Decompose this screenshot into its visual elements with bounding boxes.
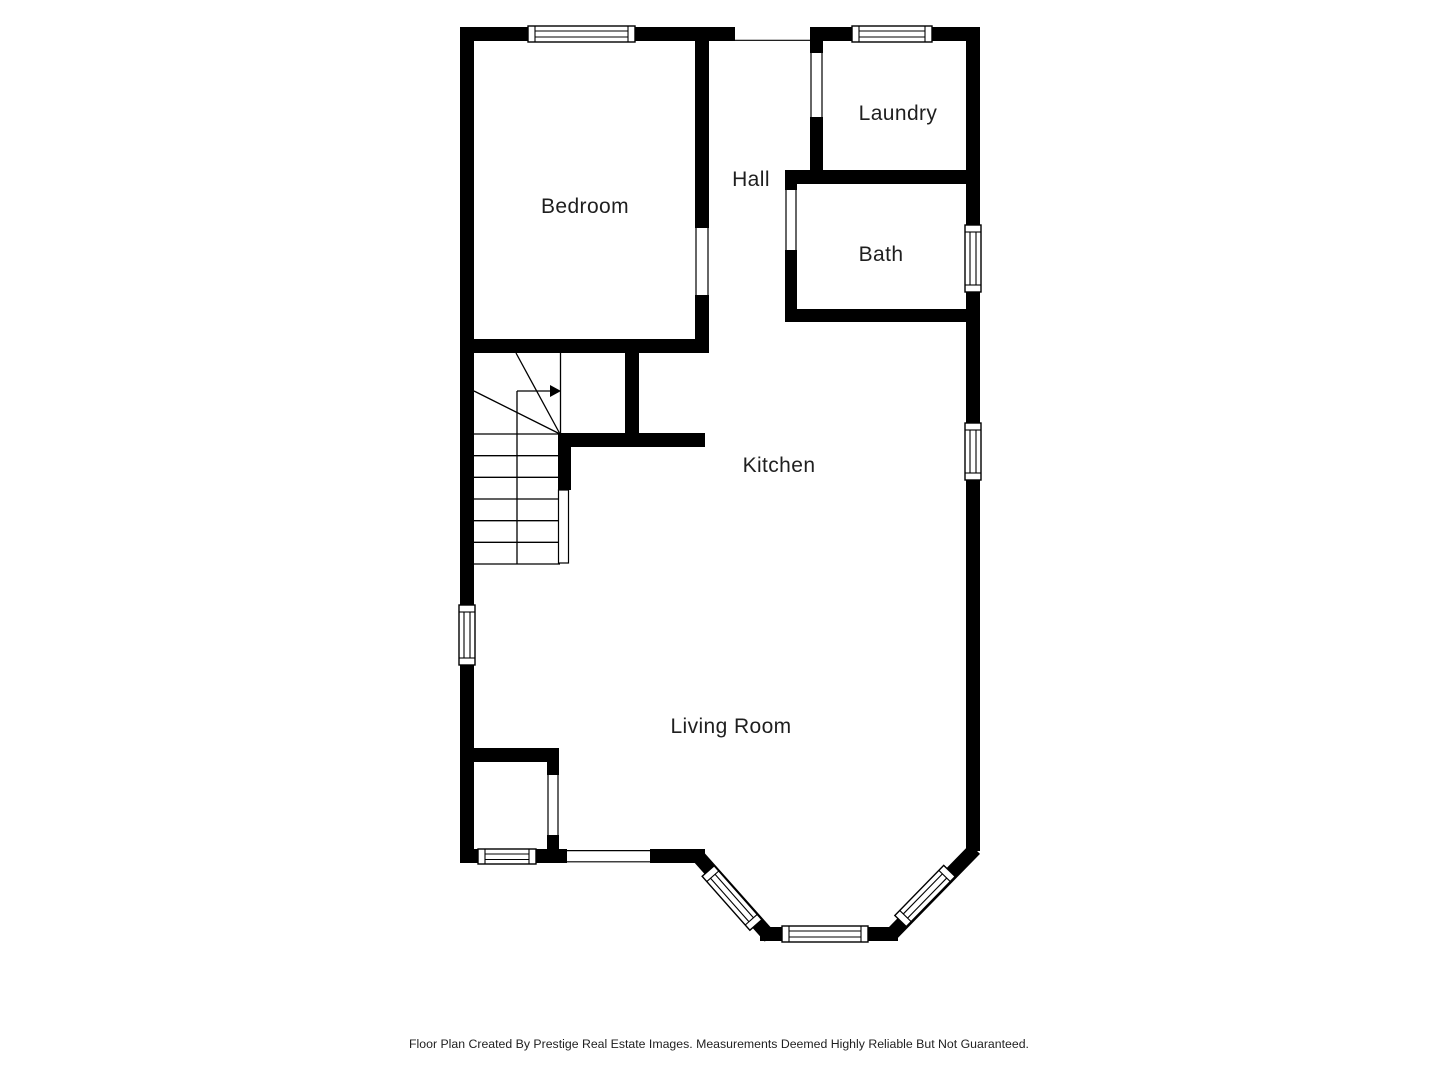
window-entry-bottom xyxy=(478,849,536,864)
room-labels: Bedroom Hall Laundry Bath Kitchen Living… xyxy=(541,102,937,738)
room-label-living-room: Living Room xyxy=(670,715,791,738)
wall-bath-left-upper xyxy=(785,170,797,190)
wall-laundry-bottom xyxy=(785,170,980,184)
window-bedroom-top xyxy=(528,26,635,42)
walls xyxy=(460,27,980,941)
wall-stair-vertical xyxy=(625,350,639,436)
wall-laundry-left-upper xyxy=(810,27,823,53)
floor-plan-drawing: Bedroom Hall Laundry Bath Kitchen Living… xyxy=(0,0,1440,1080)
wall-entry-right-lower xyxy=(547,835,559,863)
window-laundry-top xyxy=(852,26,932,42)
wall-bedroom-right-upper xyxy=(695,27,709,228)
floor-plan-page: Bedroom Hall Laundry Bath Kitchen Living… xyxy=(0,0,1440,1080)
door-openings xyxy=(548,40,822,862)
wall-entry-right-upper xyxy=(547,748,559,775)
wall-bath-bottom xyxy=(785,309,980,322)
window-living-room-left xyxy=(459,605,475,665)
room-label-laundry: Laundry xyxy=(859,102,938,125)
wall-bedroom-bottom xyxy=(460,339,709,353)
wall-stair-stub xyxy=(558,433,571,490)
room-label-bath: Bath xyxy=(859,243,904,266)
room-label-hall: Hall xyxy=(732,168,770,191)
wall-stair-bottom xyxy=(560,433,705,447)
room-label-bedroom: Bedroom xyxy=(541,195,629,218)
window-kitchen-right xyxy=(965,423,981,480)
window-bay-left-diagonal xyxy=(702,866,762,931)
window-bath-right xyxy=(965,225,981,292)
stair-handrail xyxy=(559,490,569,563)
windows xyxy=(459,26,981,942)
window-bay-bottom xyxy=(782,926,868,942)
footer-credit: Floor Plan Created By Prestige Real Esta… xyxy=(409,1037,1029,1051)
stair-arrow-head-icon xyxy=(550,385,561,397)
wall-left-outer xyxy=(460,27,474,863)
room-label-kitchen: Kitchen xyxy=(743,454,816,477)
window-bay-right-diagonal xyxy=(895,865,955,926)
staircase xyxy=(474,352,569,564)
wall-entry-top xyxy=(460,748,559,762)
